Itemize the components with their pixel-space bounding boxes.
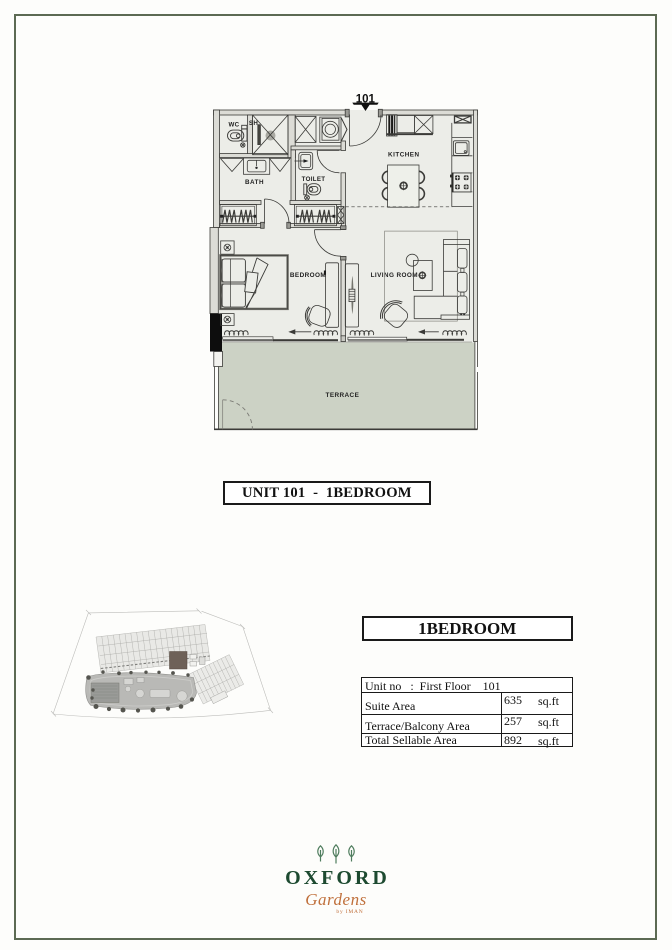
svg-text:TERRACE: TERRACE bbox=[326, 392, 360, 399]
svg-text:BEDROOM: BEDROOM bbox=[290, 272, 326, 279]
svg-text:TOILET: TOILET bbox=[302, 176, 326, 183]
svg-text:WC: WC bbox=[228, 122, 239, 129]
svg-text:BATH: BATH bbox=[245, 179, 264, 186]
svg-text:LIVING ROOM: LIVING ROOM bbox=[371, 272, 418, 279]
svg-text:KITCHEN: KITCHEN bbox=[388, 152, 420, 159]
